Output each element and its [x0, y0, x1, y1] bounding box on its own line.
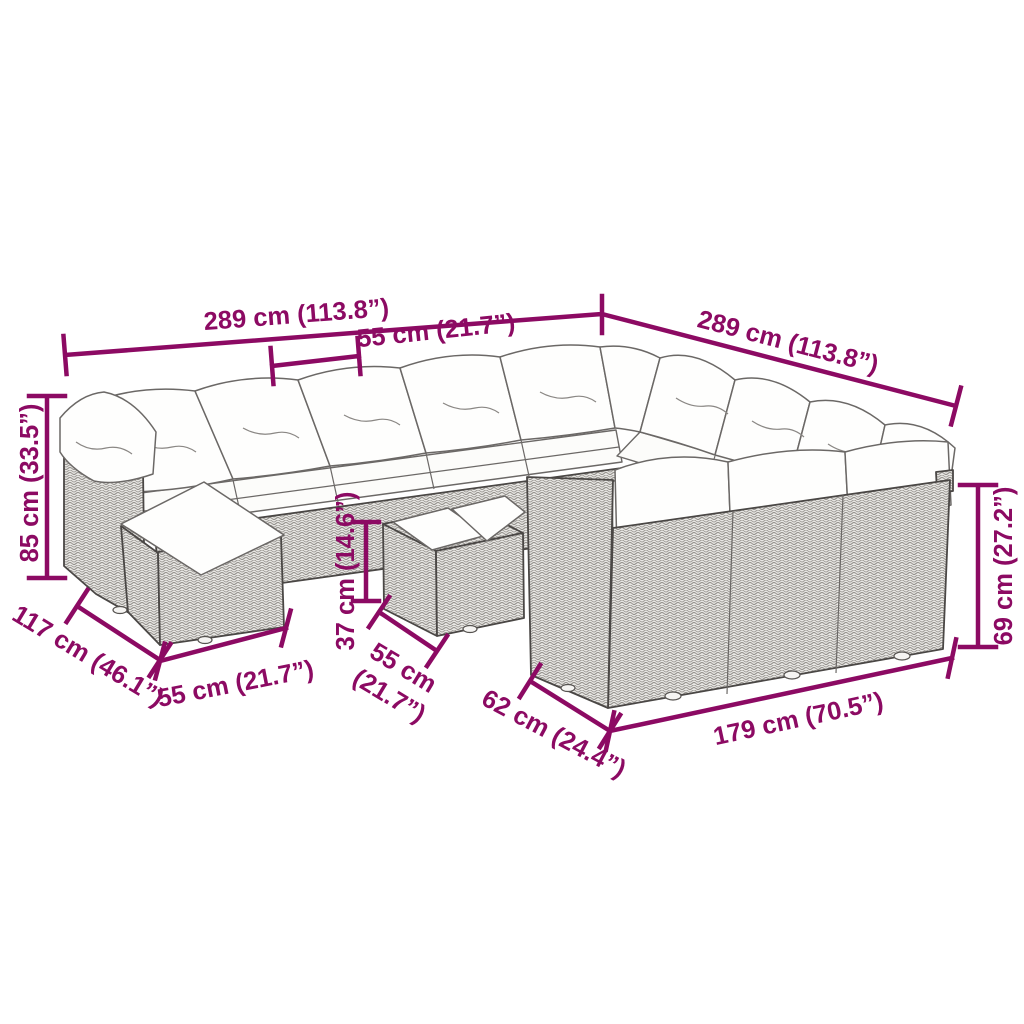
- front-sofa-foot-3: [784, 671, 800, 679]
- armrest-foot: [113, 607, 127, 614]
- front-sofa-foot-2: [665, 692, 681, 700]
- dimension-front-height: 69 cm (27.2”): [960, 485, 1018, 647]
- dimension-front-height-label: 69 cm (27.2”): [990, 487, 1018, 646]
- diagram-canvas: 289 cm (113.8”) 55 cm (21.7”) 289 cm (11…: [0, 0, 1024, 1024]
- front-sofa-foot-1: [561, 685, 575, 692]
- dimension-diagram: 289 cm (113.8”) 55 cm (21.7”) 289 cm (11…: [0, 0, 1024, 1024]
- dimension-table-height-label: 37 cm (14.6”): [332, 492, 360, 651]
- table-front-face: [436, 533, 524, 636]
- front-sofa-foot-4: [894, 652, 910, 660]
- back-cushion-5: [500, 345, 615, 440]
- front-sofa-side-panel: [527, 477, 613, 708]
- dimension-front-width-label: 179 cm (70.5”): [711, 687, 886, 751]
- dimension-ottoman-width-label: 55 cm (21.7”): [155, 655, 316, 713]
- front-sofa: [527, 441, 953, 708]
- dimension-total-height: 85 cm (33.5”): [16, 396, 65, 578]
- dimension-total-height-label: 85 cm (33.5”): [16, 404, 44, 563]
- table-foot: [463, 626, 477, 633]
- footstool-foot: [198, 637, 212, 644]
- dimension-right-width-label: 289 cm (113.8”): [695, 305, 882, 379]
